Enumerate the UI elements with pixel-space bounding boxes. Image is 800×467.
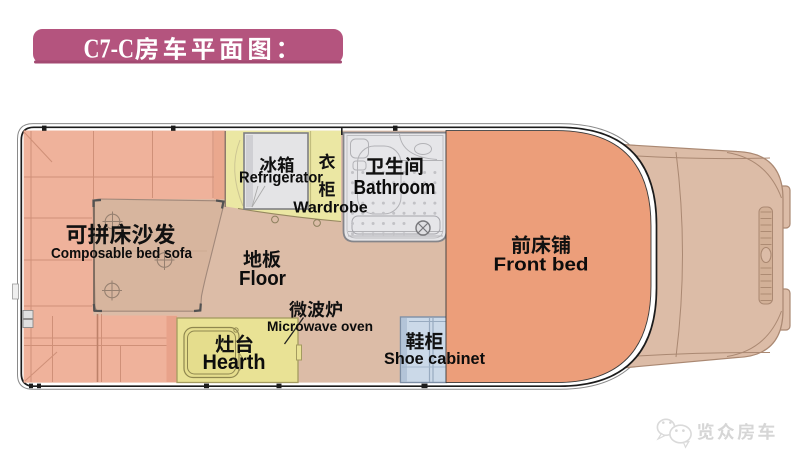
svg-text:Bathroom: Bathroom	[354, 177, 436, 199]
svg-text:C7-C: C7-C	[84, 33, 135, 64]
svg-text:Front bed: Front bed	[494, 254, 589, 275]
svg-text:Microwave oven: Microwave oven	[267, 318, 373, 334]
svg-text:Hearth: Hearth	[203, 351, 266, 374]
svg-text:Floor: Floor	[239, 268, 286, 290]
svg-text:Wardrobe: Wardrobe	[293, 199, 368, 216]
svg-text:Composable bed sofa: Composable bed sofa	[51, 245, 193, 262]
svg-text:Refrigerator: Refrigerator	[239, 169, 323, 186]
svg-text:Shoe cabinet: Shoe cabinet	[384, 349, 485, 368]
